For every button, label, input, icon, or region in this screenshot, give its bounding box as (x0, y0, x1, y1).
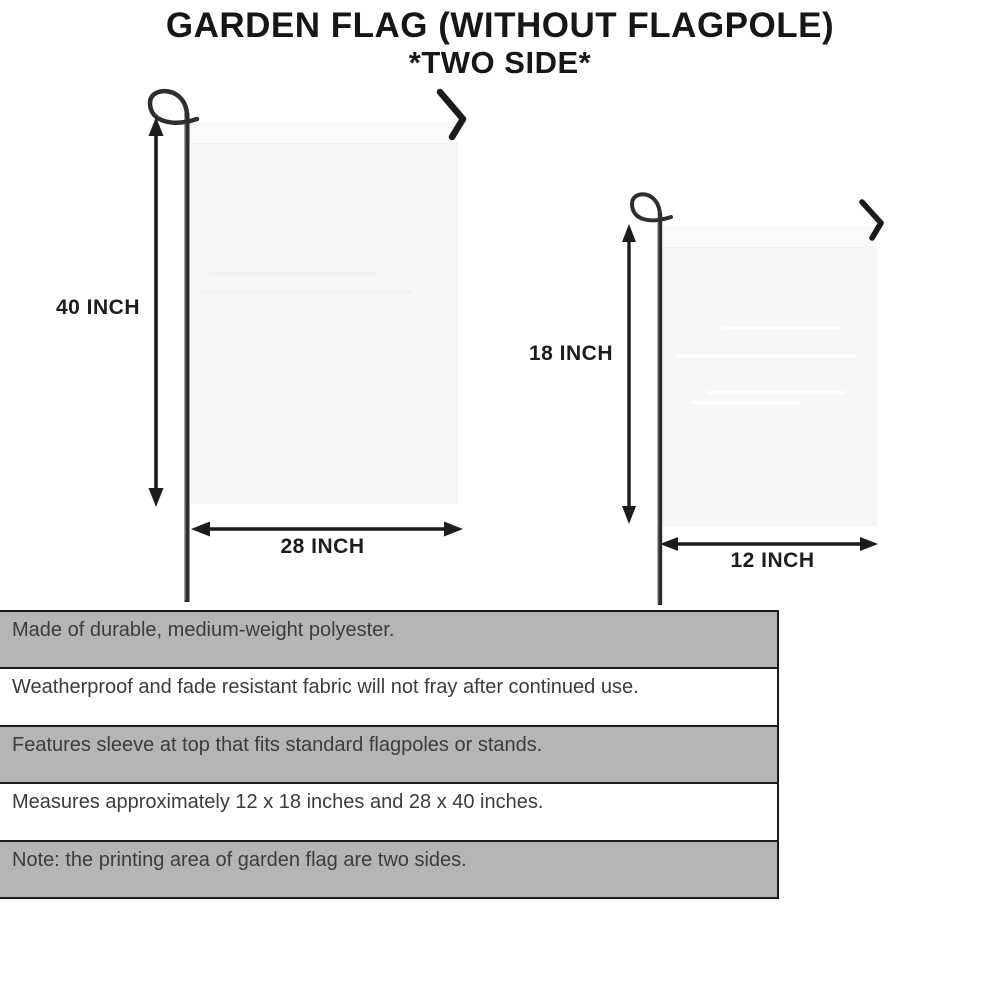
feature-text: Weatherproof and fade resistant fabric w… (12, 676, 639, 698)
feature-row: Weatherproof and fade resistant fabric w… (0, 669, 777, 726)
page-subtitle: *TWO SIDE* (0, 45, 1000, 81)
fabric-fold-line (721, 326, 841, 330)
fabric-fold-line (202, 290, 412, 293)
fabric-fold-line (706, 391, 846, 395)
large-pole-loop-icon (150, 91, 197, 123)
feature-text: Made of durable, medium-weight polyester… (12, 619, 394, 641)
large-flag-sleeve (190, 122, 458, 144)
large-height-arrow-icon (149, 117, 164, 507)
fabric-fold-line (208, 272, 378, 276)
fabric-fold-line (691, 401, 801, 404)
feature-row: Measures approximately 12 x 18 inches an… (0, 784, 777, 841)
small-flag (661, 226, 877, 526)
feature-text: Features sleeve at top that fits standar… (12, 734, 542, 756)
small-flag-height-label: 18 INCH (528, 342, 613, 366)
fabric-fold-line (676, 354, 856, 358)
feature-text: Measures approximately 12 x 18 inches an… (12, 791, 543, 813)
large-flag-height-label: 40 INCH (55, 296, 140, 320)
features-table: Made of durable, medium-weight polyester… (0, 610, 779, 899)
large-flag-width-label: 28 INCH (240, 535, 405, 559)
garden-flag-infographic: GARDEN FLAG (WITHOUT FLAGPOLE) *TWO SIDE… (0, 0, 1000, 1000)
small-pole-loop-icon (632, 194, 671, 220)
small-flag-sleeve (661, 226, 877, 248)
page-title: GARDEN FLAG (WITHOUT FLAGPOLE) (0, 6, 1000, 46)
fabric-fold-line (225, 580, 425, 584)
large-flag (190, 122, 458, 504)
fabric-fold-line (210, 562, 360, 567)
feature-row: Made of durable, medium-weight polyester… (0, 612, 777, 669)
feature-row: Features sleeve at top that fits standar… (0, 727, 777, 784)
feature-row: Note: the printing area of garden flag a… (0, 842, 777, 897)
feature-text: Note: the printing area of garden flag a… (12, 849, 467, 871)
small-height-arrow-icon (622, 224, 636, 524)
small-flag-width-label: 12 INCH (690, 549, 855, 573)
